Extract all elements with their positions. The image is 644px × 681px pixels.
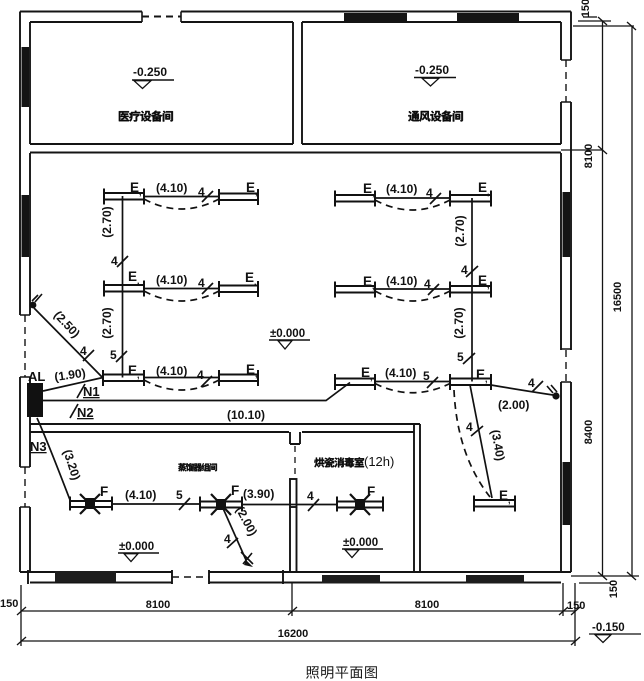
svg-text:5: 5 — [423, 369, 430, 383]
svg-text:(4.10): (4.10) — [125, 488, 156, 502]
svg-text:8400: 8400 — [583, 420, 595, 444]
svg-text:8100: 8100 — [583, 144, 595, 168]
svg-text:4: 4 — [426, 186, 433, 200]
svg-text:N1: N1 — [83, 384, 100, 399]
svg-text:4: 4 — [307, 489, 314, 503]
svg-text:F: F — [231, 483, 239, 498]
svg-text:(4.10): (4.10) — [156, 181, 187, 195]
svg-text:(4.10): (4.10) — [156, 273, 187, 287]
svg-text:(2.00): (2.00) — [498, 398, 529, 412]
svg-text:±0.000: ±0.000 — [270, 328, 305, 340]
svg-text:4: 4 — [461, 263, 468, 277]
svg-text:16200: 16200 — [278, 628, 309, 640]
svg-text:4: 4 — [528, 376, 535, 390]
svg-text:±0.000: ±0.000 — [343, 537, 378, 549]
svg-text:4: 4 — [197, 368, 204, 382]
svg-text:4: 4 — [80, 344, 87, 358]
svg-text:-0.150: -0.150 — [592, 622, 625, 634]
svg-text:150: 150 — [0, 598, 18, 610]
svg-text:150: 150 — [608, 580, 620, 598]
svg-text:5: 5 — [176, 488, 183, 502]
svg-text:4: 4 — [198, 185, 205, 199]
svg-text:(2.70): (2.70) — [452, 307, 466, 338]
svg-text:150: 150 — [580, 0, 592, 17]
svg-text:(2.70): (2.70) — [100, 307, 114, 338]
svg-text:(2.70): (2.70) — [453, 215, 467, 246]
svg-text:(4.10): (4.10) — [385, 366, 416, 380]
svg-text:AL: AL — [28, 369, 45, 384]
svg-text:8100: 8100 — [146, 599, 170, 611]
svg-text:(4.10): (4.10) — [156, 364, 187, 378]
svg-text:4: 4 — [224, 532, 231, 546]
svg-text:(4.10): (4.10) — [386, 274, 417, 288]
svg-text:16500: 16500 — [612, 282, 624, 313]
svg-text:8100: 8100 — [415, 599, 439, 611]
svg-text:4: 4 — [466, 420, 473, 434]
svg-text:4: 4 — [424, 277, 431, 291]
svg-text:F: F — [100, 484, 108, 499]
svg-text:5: 5 — [110, 348, 117, 362]
svg-text:(4.10): (4.10) — [386, 182, 417, 196]
svg-text:(12h): (12h) — [364, 454, 394, 469]
svg-text:(2.70): (2.70) — [100, 206, 114, 237]
svg-text:(10.10): (10.10) — [227, 408, 265, 422]
svg-text:-0.250: -0.250 — [133, 65, 167, 79]
svg-text:F: F — [367, 484, 375, 499]
svg-text:(3.90): (3.90) — [243, 487, 274, 501]
svg-text:-0.250: -0.250 — [415, 63, 449, 77]
svg-text:4: 4 — [111, 254, 118, 268]
svg-text:N2: N2 — [77, 405, 94, 420]
svg-text:150: 150 — [567, 600, 585, 612]
svg-text:5: 5 — [457, 350, 464, 364]
svg-text:4: 4 — [198, 276, 205, 290]
svg-text:N3: N3 — [30, 439, 47, 454]
svg-text:±0.000: ±0.000 — [119, 541, 154, 553]
